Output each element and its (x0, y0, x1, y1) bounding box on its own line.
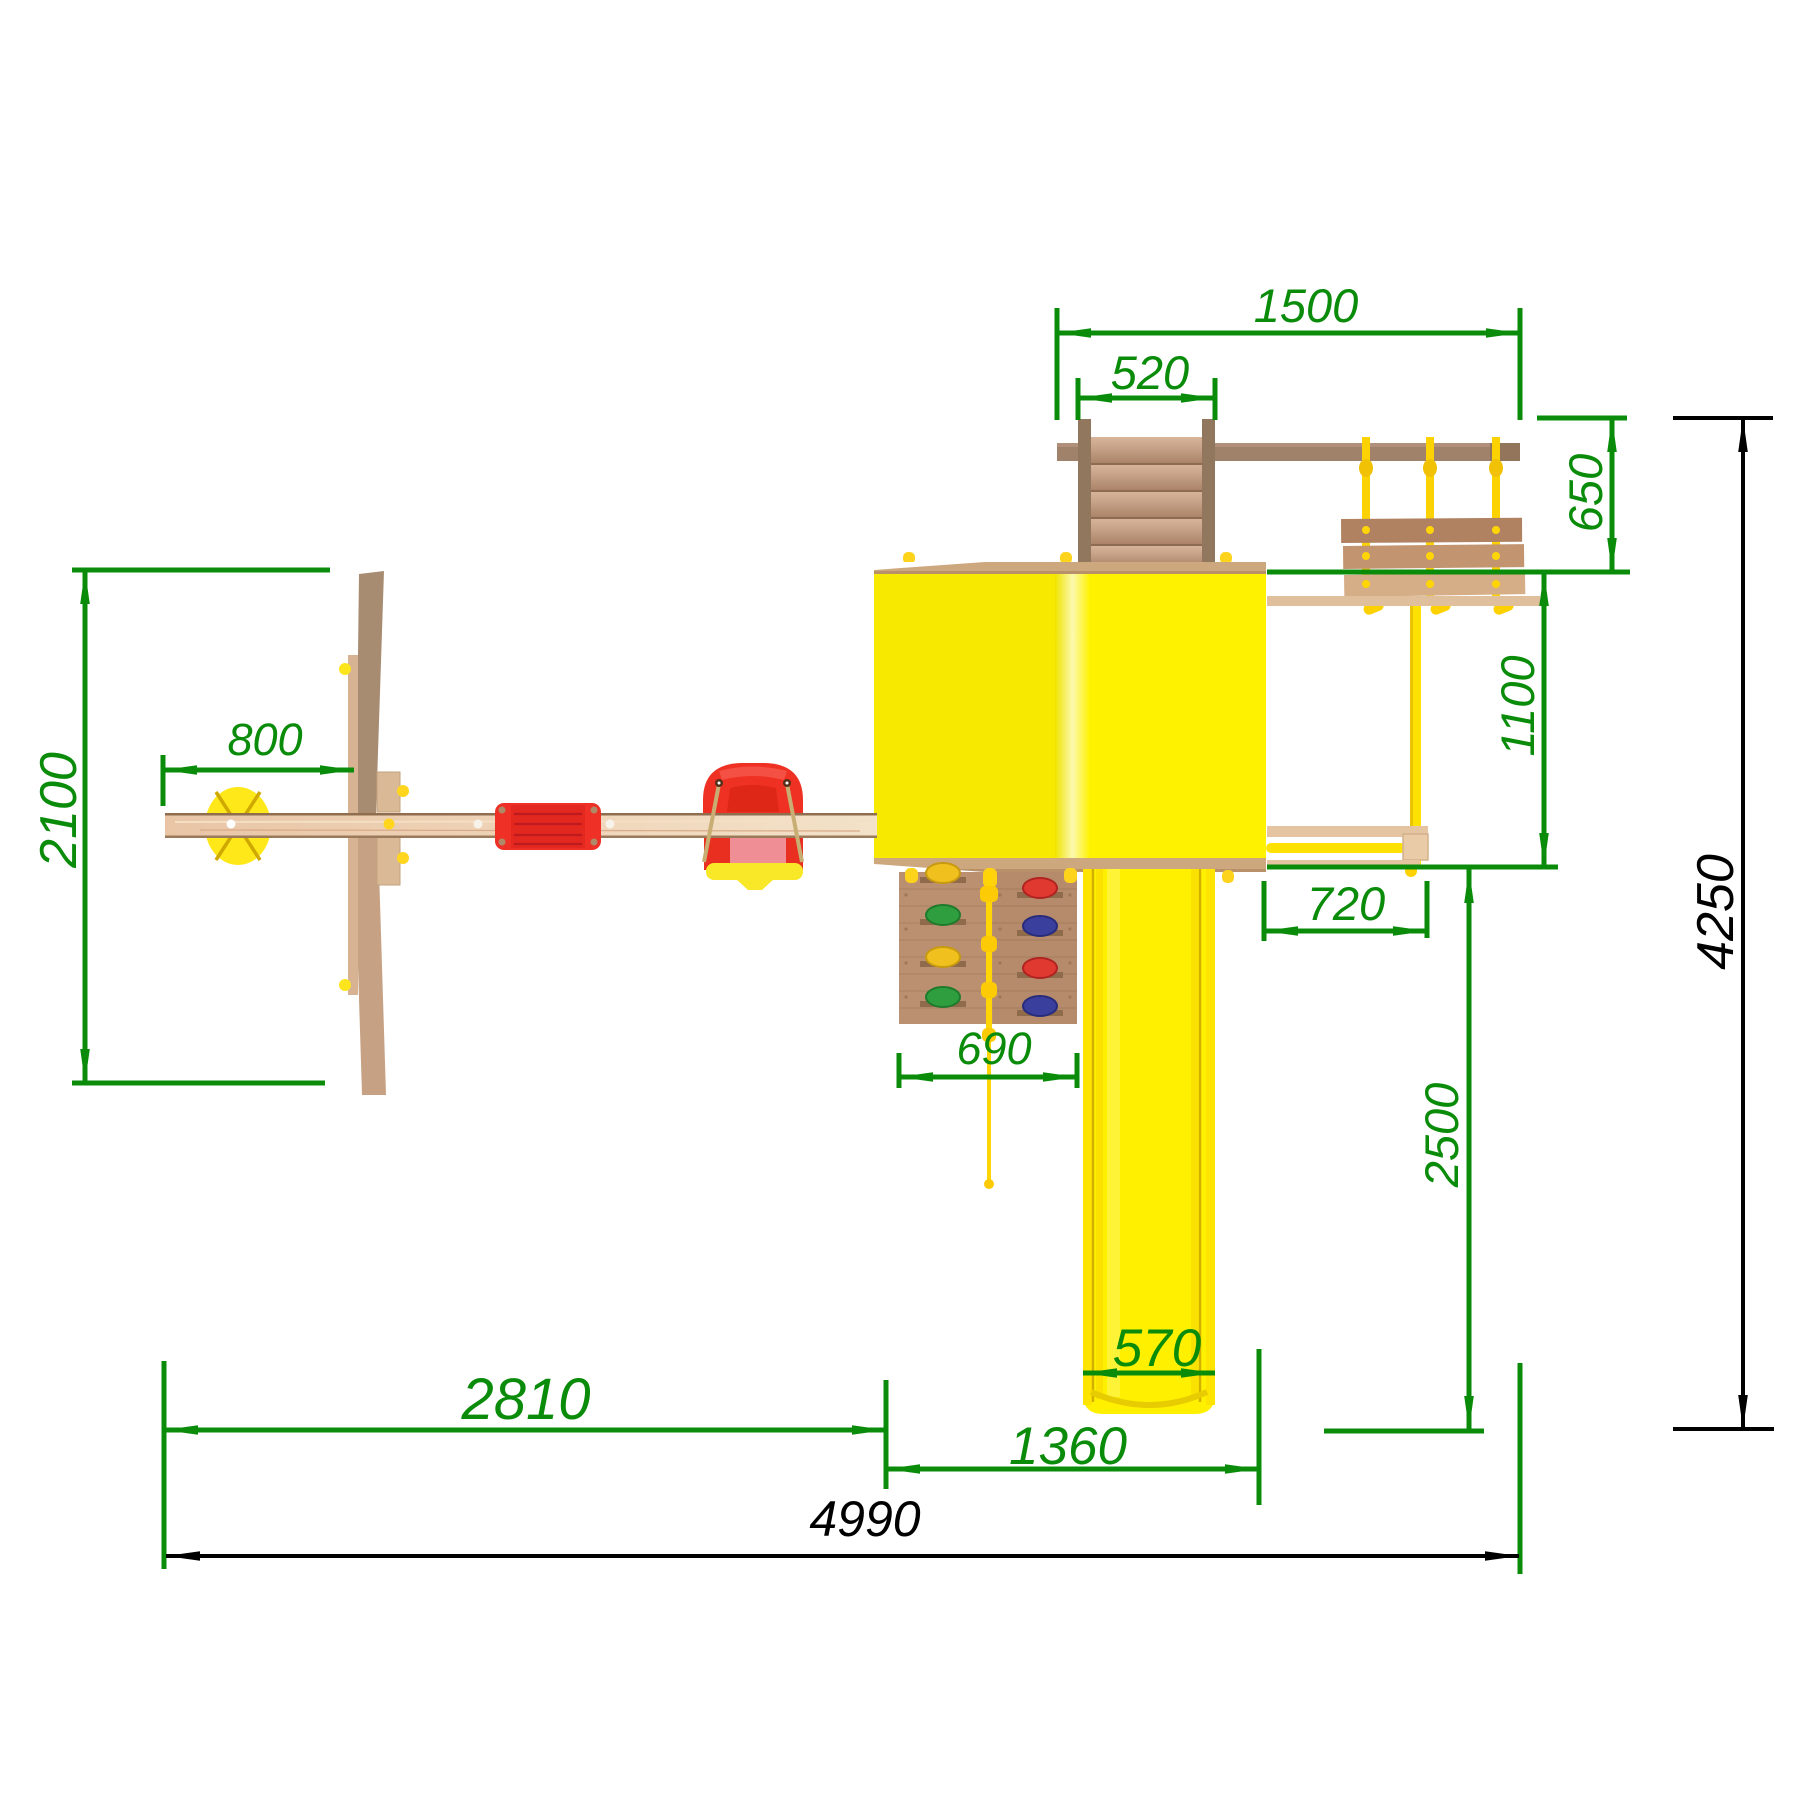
svg-text:1100: 1100 (1491, 655, 1544, 756)
svg-text:690: 690 (956, 1023, 1031, 1074)
svg-text:2100: 2100 (30, 752, 88, 869)
svg-text:2500: 2500 (1415, 1083, 1468, 1189)
svg-text:520: 520 (1111, 346, 1189, 399)
svg-text:720: 720 (1307, 877, 1385, 930)
svg-text:650: 650 (1559, 454, 1612, 532)
svg-text:570: 570 (1113, 1319, 1202, 1378)
svg-text:1500: 1500 (1254, 279, 1359, 332)
svg-text:4250: 4250 (1687, 854, 1745, 970)
svg-text:2810: 2810 (460, 1367, 590, 1432)
svg-text:800: 800 (227, 714, 302, 765)
svg-text:4990: 4990 (809, 1491, 920, 1547)
svg-text:1360: 1360 (1009, 1417, 1127, 1476)
